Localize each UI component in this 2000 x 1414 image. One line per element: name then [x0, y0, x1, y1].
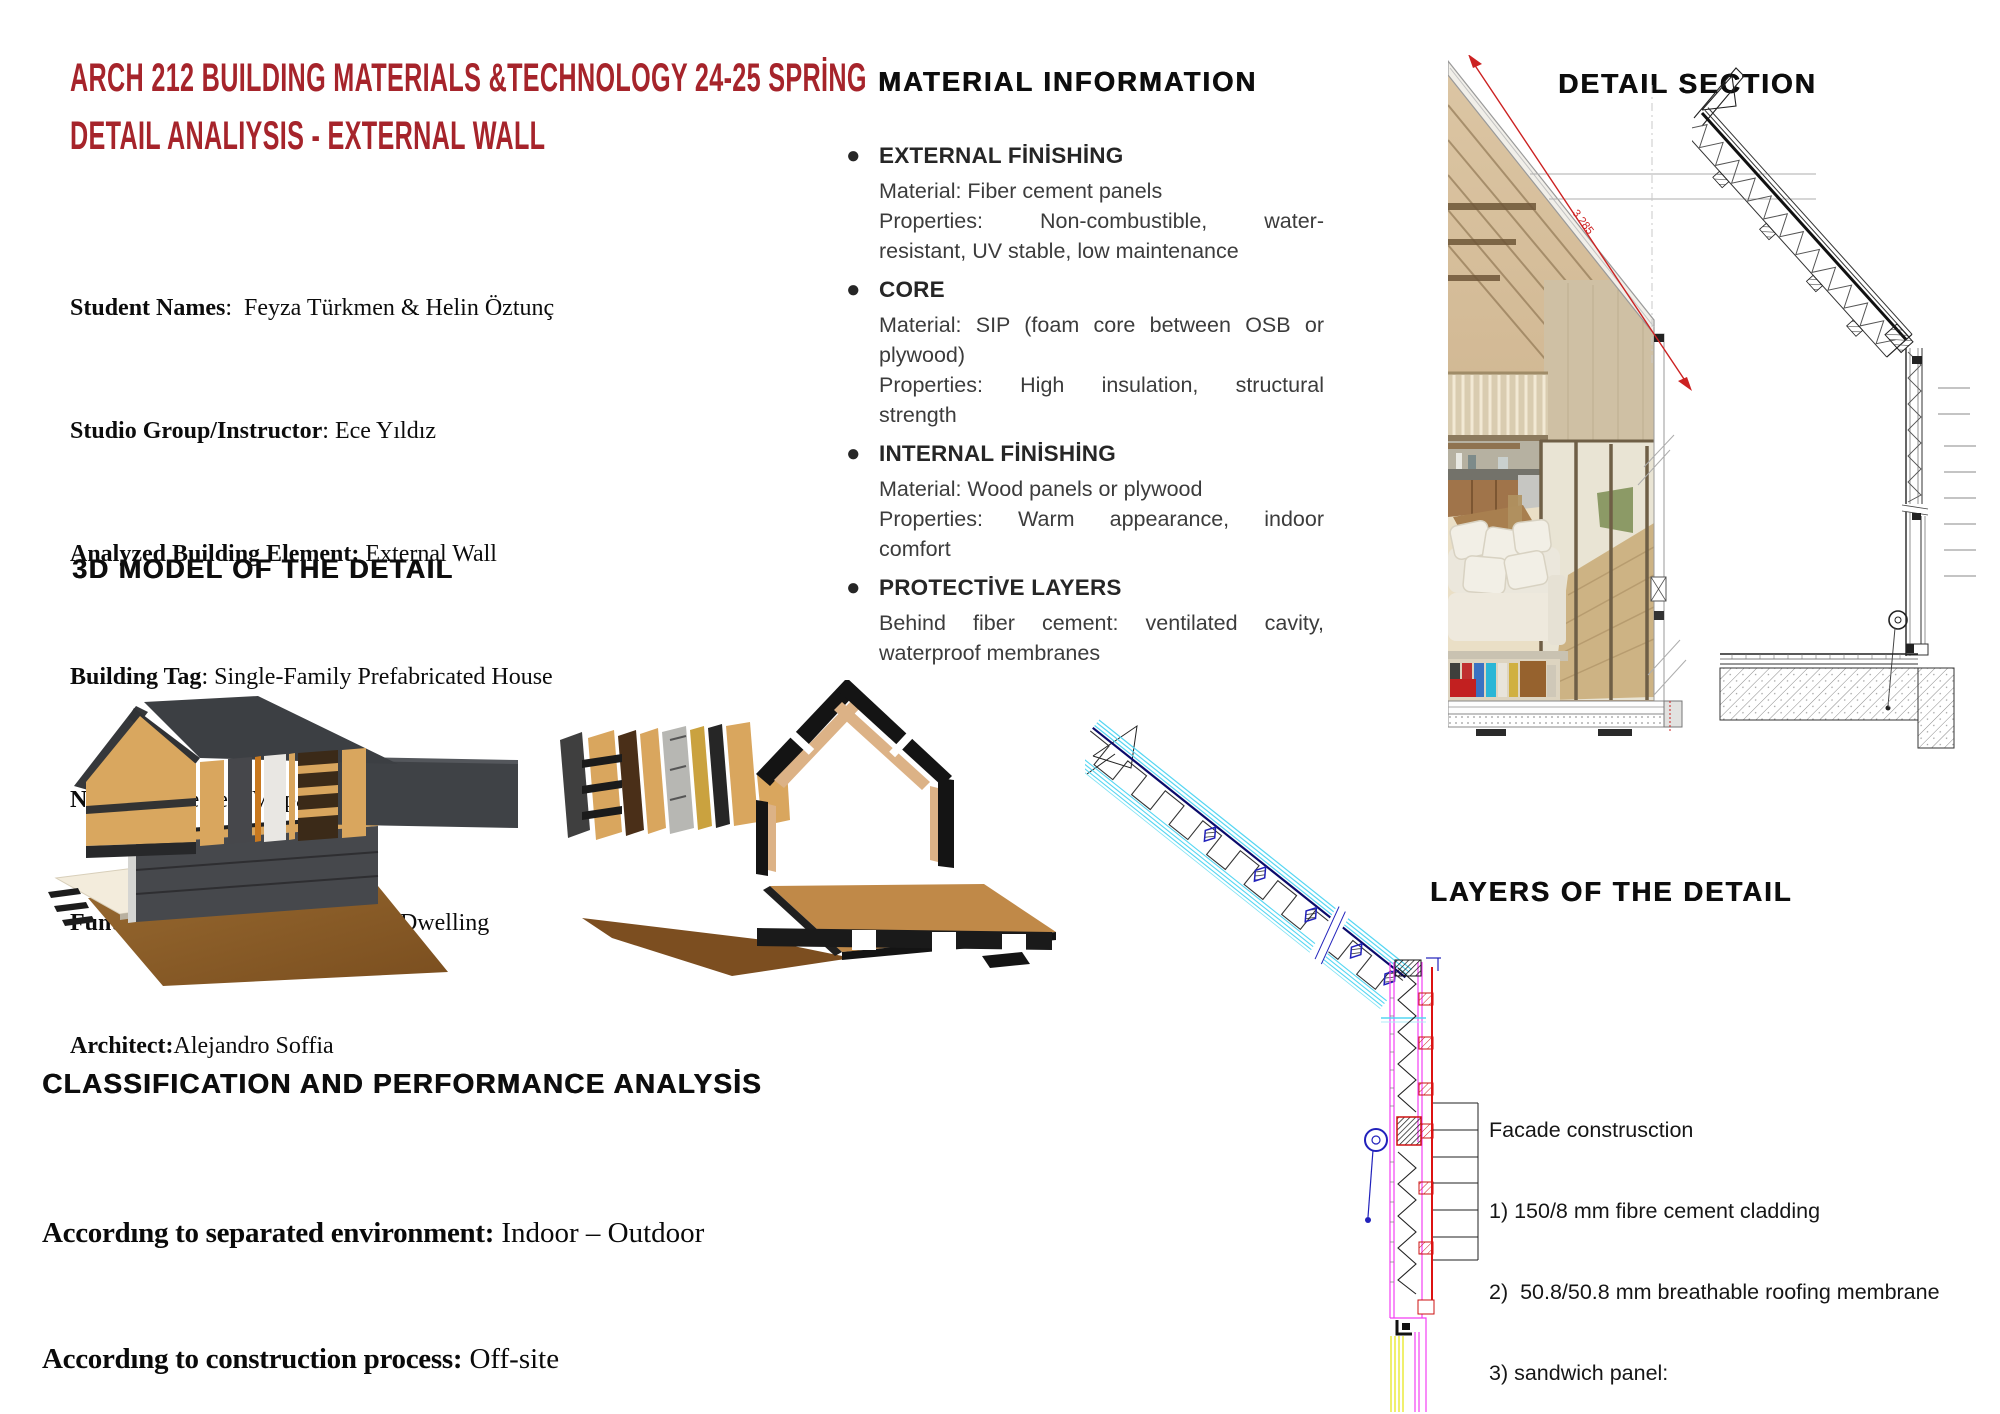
roof-band — [1085, 717, 1414, 1010]
info-row: Studio Group/Instructor: Ece Yıldız — [70, 411, 554, 452]
layer-fan — [560, 722, 790, 840]
material-line: Properties: Warm appearance, indoor — [879, 504, 1324, 534]
material-group-core: ●CORE Material: SIP (foam core between O… — [846, 276, 1324, 430]
photo-content — [1448, 55, 1654, 701]
material-line: plywood) — [879, 340, 1324, 370]
facade-leader-bracket — [1433, 1103, 1478, 1260]
model3d-render-right — [552, 680, 1092, 1025]
poster-page: ARCH 212 BUILDING MATERIALS &TECHNOLOGY … — [0, 0, 2000, 1414]
course-title-line1: ARCH 212 BUILDING MATERIALS &TECHNOLOGY … — [70, 56, 867, 101]
material-line: comfort — [879, 534, 1324, 564]
classification-list: Accordıng to separated environment: Indo… — [42, 1128, 1192, 1414]
detail-section-drawing — [1692, 58, 2000, 758]
house-frame — [756, 680, 954, 876]
material-line: waterproof membranes — [879, 638, 1324, 668]
material-line: Behind fiber cement: ventilated cavity, — [879, 608, 1324, 638]
heading-classification: CLASSIFICATION AND PERFORMANCE ANALYSİS — [42, 1068, 762, 1100]
info-row: Architect:Alejandro Soffia — [70, 1026, 554, 1067]
info-row: Student Names: Feyza Türkmen & Helin Özt… — [70, 288, 554, 329]
model3d-render-left — [48, 686, 538, 1018]
gable-cut-marks — [1087, 726, 1137, 774]
eave-block — [1885, 324, 1913, 353]
level-ticks — [1938, 388, 1976, 576]
ground-slab — [1720, 668, 1954, 748]
floor-assembly — [582, 884, 1056, 976]
material-line: Material: SIP (foam core between OSB or — [879, 310, 1324, 340]
fastener-diamonds — [1200, 823, 1400, 988]
material-line: Properties: Non-combustible, water- — [879, 206, 1324, 236]
material-line: Properties: High insulation, structural — [879, 370, 1324, 400]
material-line: Material: Fiber cement panels — [879, 176, 1324, 206]
wall-band — [1902, 348, 1928, 656]
pulley-blue — [1365, 1129, 1387, 1223]
material-group-external-finishing: ●EXTERNAL FİNİSHİNG Material: Fiber ceme… — [846, 142, 1324, 266]
bullet-icon: ● — [846, 574, 879, 602]
material-line: strength — [879, 400, 1324, 430]
layers-cad-drawing — [1085, 712, 1565, 1414]
bullet-icon: ● — [846, 142, 879, 170]
heading-material-information: MATERIAL INFORMATION — [878, 66, 1257, 98]
ridge-cut — [1694, 68, 1744, 126]
classification-row: Accordıng to construction process: Off-s… — [42, 1338, 1192, 1380]
floor-deck — [1720, 654, 1918, 664]
roof-truss-band — [1692, 108, 1912, 363]
material-line: Material: Wood panels or plywood — [879, 474, 1324, 504]
material-group-protective-layers: ●PROTECTİVE LAYERS Behind fiber cement: … — [846, 574, 1324, 668]
material-group-internal-finishing: ●INTERNAL FİNİSHİNG Material: Wood panel… — [846, 440, 1324, 564]
service-lines-yellow — [1391, 1336, 1403, 1412]
material-information-list: ●EXTERNAL FİNİSHİNG Material: Fiber ceme… — [846, 132, 1324, 670]
heading-3d-model: 3D MODEL OF THE DETAIL — [72, 554, 454, 585]
bullet-icon: ● — [846, 440, 879, 468]
bullet-icon: ● — [846, 276, 879, 304]
classification-row: Accordıng to separated environment: Indo… — [42, 1212, 1192, 1254]
wall-section — [1365, 958, 1441, 1412]
course-title-line2: DETAIL ANALIYSIS - EXTERNAL WALL — [70, 114, 545, 159]
material-line: resistant, UV stable, low maintenance — [879, 236, 1324, 266]
